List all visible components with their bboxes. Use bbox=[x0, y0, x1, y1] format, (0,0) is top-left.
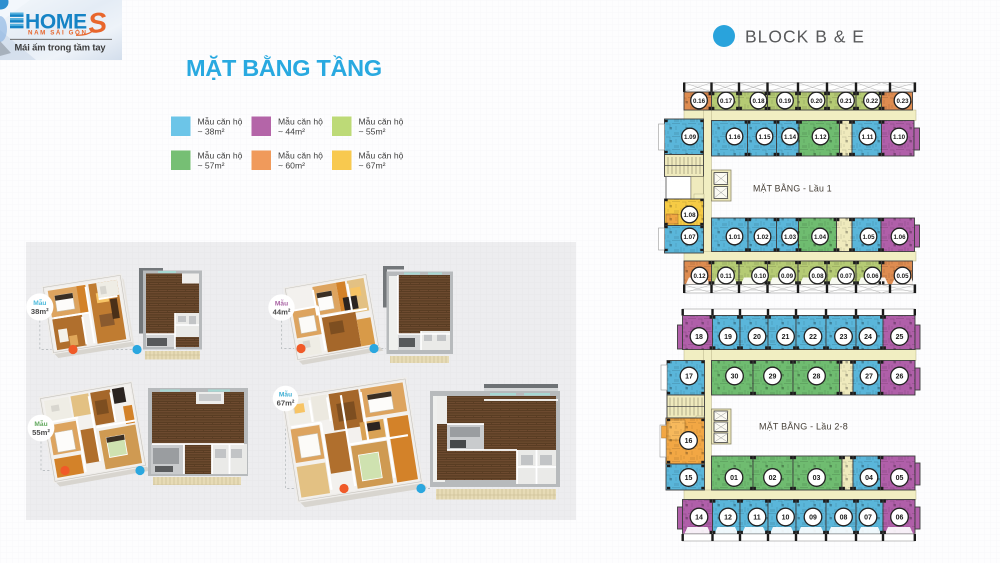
svg-text:~ 38m²: ~ 38m² bbox=[198, 127, 225, 137]
svg-text:0.11: 0.11 bbox=[720, 273, 732, 280]
svg-text:26: 26 bbox=[896, 374, 904, 381]
svg-text:22: 22 bbox=[809, 334, 817, 341]
svg-text:~ 44m²: ~ 44m² bbox=[278, 127, 305, 137]
svg-text:0.06: 0.06 bbox=[866, 273, 879, 280]
svg-text:1.01: 1.01 bbox=[728, 234, 741, 241]
svg-text:09: 09 bbox=[809, 515, 817, 522]
svg-text:Mẫu: Mẫu bbox=[275, 299, 288, 308]
svg-text:0.10: 0.10 bbox=[754, 273, 767, 280]
svg-text:1.08: 1.08 bbox=[683, 212, 696, 219]
svg-text:0.20: 0.20 bbox=[810, 98, 823, 105]
svg-text:05: 05 bbox=[896, 475, 904, 482]
svg-text:MẶT BẰNG - Lầu 2-8: MẶT BẰNG - Lầu 2-8 bbox=[759, 422, 848, 432]
svg-text:Mái ấm trong tầm tay: Mái ấm trong tầm tay bbox=[15, 43, 107, 53]
svg-text:1.02: 1.02 bbox=[756, 234, 769, 241]
svg-text:0.05: 0.05 bbox=[896, 273, 909, 280]
svg-text:0.23: 0.23 bbox=[896, 98, 909, 105]
svg-text:0.18: 0.18 bbox=[752, 98, 765, 105]
svg-text:10: 10 bbox=[782, 515, 790, 522]
svg-text:44m²: 44m² bbox=[273, 308, 291, 317]
svg-text:18: 18 bbox=[695, 334, 703, 341]
svg-text:29: 29 bbox=[769, 374, 777, 381]
svg-text:20: 20 bbox=[753, 334, 761, 341]
svg-text:30: 30 bbox=[731, 374, 739, 381]
svg-text:1.06: 1.06 bbox=[893, 234, 906, 241]
svg-text:14: 14 bbox=[695, 515, 703, 522]
svg-text:0.07: 0.07 bbox=[840, 273, 853, 280]
svg-text:07: 07 bbox=[864, 515, 872, 522]
svg-text:1.10: 1.10 bbox=[893, 134, 906, 141]
svg-text:12: 12 bbox=[724, 515, 732, 522]
svg-text:06: 06 bbox=[896, 515, 904, 522]
svg-text:S: S bbox=[86, 6, 108, 39]
svg-text:17: 17 bbox=[685, 374, 693, 381]
svg-text:28: 28 bbox=[813, 374, 821, 381]
svg-text:1.15: 1.15 bbox=[758, 134, 771, 141]
svg-text:0.22: 0.22 bbox=[866, 98, 879, 105]
svg-text:0.08: 0.08 bbox=[811, 273, 824, 280]
svg-text:Mẫu căn hộ: Mẫu căn hộ bbox=[359, 151, 404, 161]
svg-text:Mẫu: Mẫu bbox=[279, 390, 292, 399]
svg-text:55m²: 55m² bbox=[32, 428, 50, 437]
svg-text:24: 24 bbox=[864, 334, 872, 341]
svg-text:08: 08 bbox=[840, 515, 848, 522]
svg-text:Mẫu: Mẫu bbox=[34, 419, 47, 428]
svg-text:~ 60m²: ~ 60m² bbox=[278, 161, 305, 171]
svg-text:MẶT BẰNG TẦNG: MẶT BẰNG TẦNG bbox=[186, 54, 382, 81]
svg-text:Mẫu: Mẫu bbox=[33, 298, 46, 307]
svg-text:Mẫu căn hộ: Mẫu căn hộ bbox=[278, 151, 323, 161]
svg-text:38m²: 38m² bbox=[31, 307, 49, 316]
svg-text:0.09: 0.09 bbox=[781, 273, 794, 280]
svg-text:~ 57m²: ~ 57m² bbox=[198, 161, 225, 171]
svg-text:0.19: 0.19 bbox=[779, 98, 792, 105]
svg-text:23: 23 bbox=[840, 334, 848, 341]
svg-text:15: 15 bbox=[685, 475, 693, 482]
svg-text:Mẫu căn hộ: Mẫu căn hộ bbox=[198, 151, 243, 161]
svg-text:Mẫu căn hộ: Mẫu căn hộ bbox=[278, 117, 323, 127]
svg-text:Mẫu căn hộ: Mẫu căn hộ bbox=[198, 117, 243, 127]
svg-text:01: 01 bbox=[730, 475, 738, 482]
svg-text:27: 27 bbox=[865, 374, 873, 381]
svg-text:BLOCK B & E: BLOCK B & E bbox=[745, 27, 865, 47]
svg-text:11: 11 bbox=[753, 515, 761, 522]
svg-text:MẶT BẰNG - Lầu 1: MẶT BẰNG - Lầu 1 bbox=[753, 184, 832, 194]
svg-text:1.14: 1.14 bbox=[784, 134, 797, 141]
svg-text:0.16: 0.16 bbox=[693, 98, 706, 105]
svg-text:1.05: 1.05 bbox=[862, 234, 875, 241]
svg-text:1.11: 1.11 bbox=[862, 134, 874, 141]
svg-text:1.04: 1.04 bbox=[814, 234, 827, 241]
svg-text:1.12: 1.12 bbox=[814, 134, 827, 141]
svg-text:1.03: 1.03 bbox=[784, 234, 797, 241]
svg-text:16: 16 bbox=[685, 438, 693, 445]
svg-text:0.21: 0.21 bbox=[840, 98, 853, 105]
svg-text:~ 67m²: ~ 67m² bbox=[359, 161, 386, 171]
svg-text:NAM SÀI GÒN: NAM SÀI GÒN bbox=[28, 29, 88, 37]
svg-text:02: 02 bbox=[769, 475, 777, 482]
svg-text:1.09: 1.09 bbox=[684, 134, 697, 141]
svg-text:~ 55m²: ~ 55m² bbox=[359, 127, 386, 137]
svg-text:1.16: 1.16 bbox=[728, 134, 741, 141]
svg-text:67m²: 67m² bbox=[277, 399, 295, 408]
svg-text:21: 21 bbox=[782, 334, 790, 341]
svg-text:19: 19 bbox=[724, 334, 732, 341]
svg-text:25: 25 bbox=[896, 334, 904, 341]
svg-text:04: 04 bbox=[865, 475, 873, 482]
svg-text:0.17: 0.17 bbox=[720, 98, 733, 105]
svg-text:03: 03 bbox=[813, 475, 821, 482]
svg-text:Mẫu căn hộ: Mẫu căn hộ bbox=[359, 117, 404, 127]
svg-text:1.07: 1.07 bbox=[683, 234, 696, 241]
svg-text:0.12: 0.12 bbox=[693, 273, 706, 280]
